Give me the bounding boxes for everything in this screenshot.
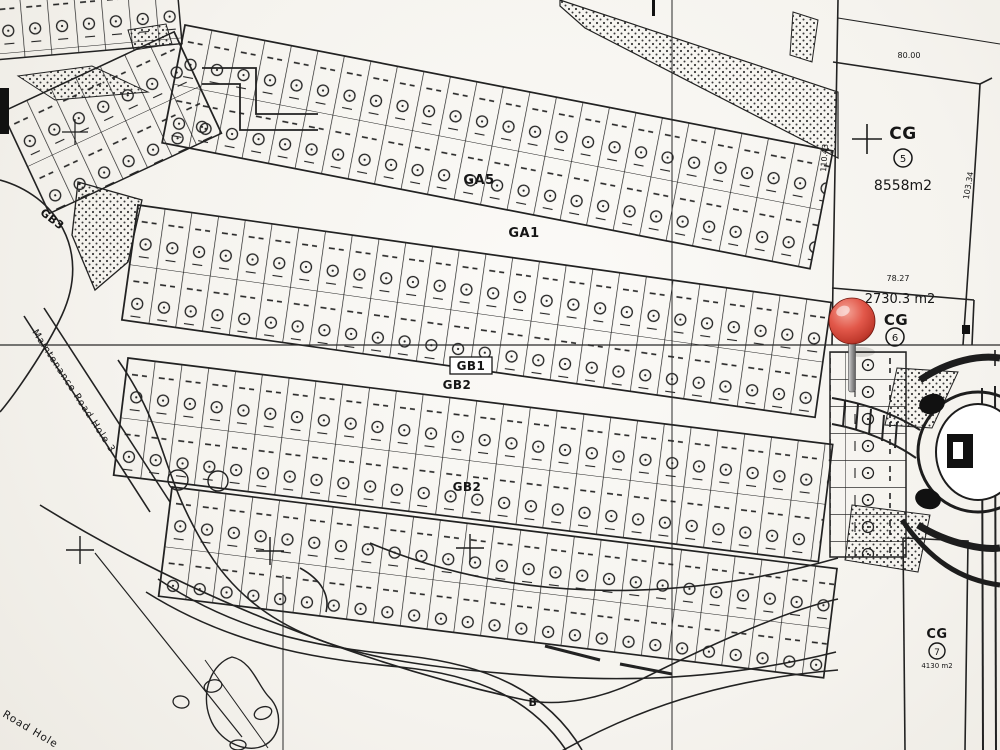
zone-label-gb1: GB1	[457, 359, 486, 373]
zone-label-ga1: GA1	[508, 226, 539, 241]
crosshair-mark	[988, 350, 1000, 366]
edge-length: 80.00	[898, 51, 921, 60]
parcel-code: CG	[889, 124, 916, 144]
parcel-number: 6	[892, 333, 898, 344]
parcel-area: 8558m2	[874, 178, 932, 194]
zone-label-ga5: GA5	[463, 173, 494, 188]
parcel-code: CG	[884, 311, 908, 329]
parcel-cg5: CG 5 8558m2 80.00 110.43 103.34	[819, 51, 975, 200]
pin-needle	[849, 340, 856, 392]
parcel-code: CG	[926, 627, 947, 642]
zone-label-gb2-upper: GB2	[443, 378, 472, 392]
parcel-area: 4130 m2	[921, 662, 952, 670]
parcel-area: 2730.3 m2	[865, 292, 936, 307]
crosshair-mark	[66, 536, 94, 564]
maintenance-road-label: Maintenance Road Hole 3	[29, 328, 117, 455]
pin-ball	[829, 298, 875, 344]
zone-label-gb2-lower: GB2	[453, 480, 482, 494]
cadastral-map: CG 5 8558m2 80.00 110.43 103.34 78.27 27…	[0, 0, 1000, 750]
parcel-cg6: 78.27 2730.3 m2 CG 6	[865, 274, 936, 346]
map-viewport[interactable]: CG 5 8558m2 80.00 110.43 103.34 78.27 27…	[0, 0, 1000, 750]
bottom-road-label: Road Hole	[0, 708, 60, 750]
parcel-cg7: CG 7 4130 m2	[921, 627, 952, 670]
crosshair-mark	[852, 124, 882, 154]
parcel-number: 5	[900, 154, 906, 165]
point-b-label: B	[529, 696, 538, 709]
parcel-number: 7	[934, 648, 940, 658]
edge-length: 78.27	[887, 274, 910, 283]
